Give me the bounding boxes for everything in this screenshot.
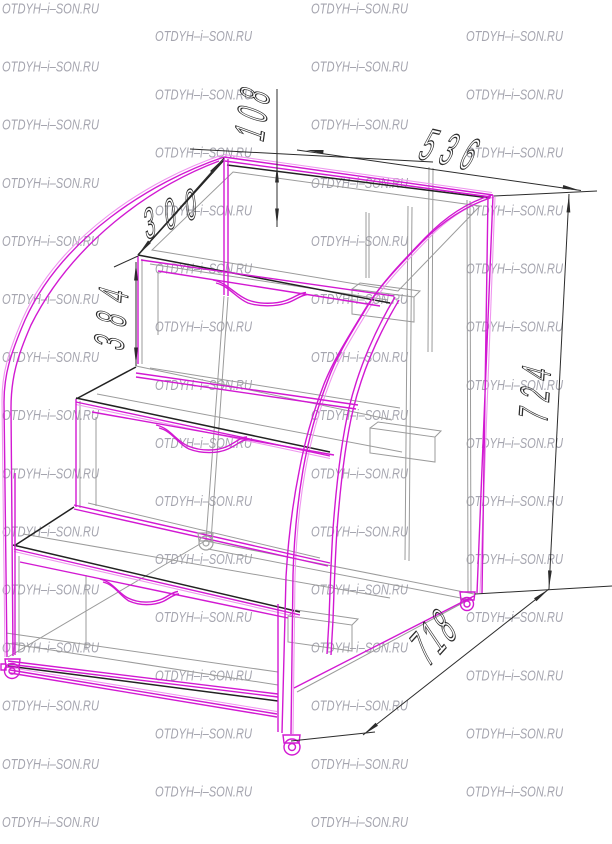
svg-text:OTDYH–i–SON.RU: OTDYH–i–SON.RU	[466, 784, 563, 801]
svg-text:OTDYH–i–SON.RU: OTDYH–i–SON.RU	[466, 261, 563, 278]
svg-text:OTDYH–i–SON.RU: OTDYH–i–SON.RU	[311, 756, 408, 773]
svg-text:OTDYH–i–SON.RU: OTDYH–i–SON.RU	[311, 117, 408, 134]
svg-text:OTDYH–i–SON.RU: OTDYH–i–SON.RU	[2, 814, 99, 831]
svg-text:OTDYH–i–SON.RU: OTDYH–i–SON.RU	[155, 493, 252, 510]
svg-text:724: 724	[512, 352, 562, 427]
svg-text:OTDYH–i–SON.RU: OTDYH–i–SON.RU	[2, 582, 99, 599]
svg-text:OTDYH–i–SON.RU: OTDYH–i–SON.RU	[466, 319, 563, 336]
svg-text:OTDYH–i–SON.RU: OTDYH–i–SON.RU	[155, 784, 252, 801]
svg-text:OTDYH–i–SON.RU: OTDYH–i–SON.RU	[311, 233, 408, 250]
svg-text:OTDYH–i–SON.RU: OTDYH–i–SON.RU	[311, 582, 408, 599]
svg-text:OTDYH–i–SON.RU: OTDYH–i–SON.RU	[466, 203, 563, 220]
svg-text:OTDYH–i–SON.RU: OTDYH–i–SON.RU	[311, 698, 408, 715]
svg-text:OTDYH–i–SON.RU: OTDYH–i–SON.RU	[2, 407, 99, 424]
svg-text:OTDYH–i–SON.RU: OTDYH–i–SON.RU	[311, 814, 408, 831]
svg-text:OTDYH–i–SON.RU: OTDYH–i–SON.RU	[311, 1, 408, 18]
svg-text:OTDYH–i–SON.RU: OTDYH–i–SON.RU	[2, 756, 99, 773]
svg-text:OTDYH–i–SON.RU: OTDYH–i–SON.RU	[2, 1, 99, 18]
svg-text:OTDYH–i–SON.RU: OTDYH–i–SON.RU	[2, 175, 99, 192]
svg-text:OTDYH–i–SON.RU: OTDYH–i–SON.RU	[311, 349, 408, 366]
svg-text:OTDYH–i–SON.RU: OTDYH–i–SON.RU	[466, 28, 563, 45]
svg-text:OTDYH–i–SON.RU: OTDYH–i–SON.RU	[155, 319, 252, 336]
svg-text:OTDYH–i–SON.RU: OTDYH–i–SON.RU	[155, 609, 252, 626]
svg-text:OTDYH–i–SON.RU: OTDYH–i–SON.RU	[155, 725, 252, 742]
svg-text:OTDYH–i–SON.RU: OTDYH–i–SON.RU	[466, 725, 563, 742]
svg-text:OTDYH–i–SON.RU: OTDYH–i–SON.RU	[311, 465, 408, 482]
svg-text:OTDYH–i–SON.RU: OTDYH–i–SON.RU	[311, 523, 408, 540]
svg-text:OTDYH–i–SON.RU: OTDYH–i–SON.RU	[466, 609, 563, 626]
svg-text:OTDYH–i–SON.RU: OTDYH–i–SON.RU	[2, 465, 99, 482]
svg-text:384: 384	[86, 271, 138, 355]
svg-text:OTDYH–i–SON.RU: OTDYH–i–SON.RU	[2, 59, 99, 76]
svg-text:OTDYH–i–SON.RU: OTDYH–i–SON.RU	[2, 698, 99, 715]
svg-text:OTDYH–i–SON.RU: OTDYH–i–SON.RU	[155, 667, 252, 684]
svg-text:OTDYH–i–SON.RU: OTDYH–i–SON.RU	[466, 435, 563, 452]
svg-text:OTDYH–i–SON.RU: OTDYH–i–SON.RU	[311, 407, 408, 424]
svg-text:OTDYH–i–SON.RU: OTDYH–i–SON.RU	[2, 640, 99, 657]
svg-text:OTDYH–i–SON.RU: OTDYH–i–SON.RU	[466, 667, 563, 684]
svg-text:OTDYH–i–SON.RU: OTDYH–i–SON.RU	[2, 523, 99, 540]
svg-text:OTDYH–i–SON.RU: OTDYH–i–SON.RU	[466, 86, 563, 103]
svg-text:OTDYH–i–SON.RU: OTDYH–i–SON.RU	[311, 59, 408, 76]
svg-text:OTDYH–i–SON.RU: OTDYH–i–SON.RU	[155, 28, 252, 45]
svg-text:OTDYH–i–SON.RU: OTDYH–i–SON.RU	[2, 117, 99, 134]
svg-text:OTDYH–i–SON.RU: OTDYH–i–SON.RU	[2, 291, 99, 308]
